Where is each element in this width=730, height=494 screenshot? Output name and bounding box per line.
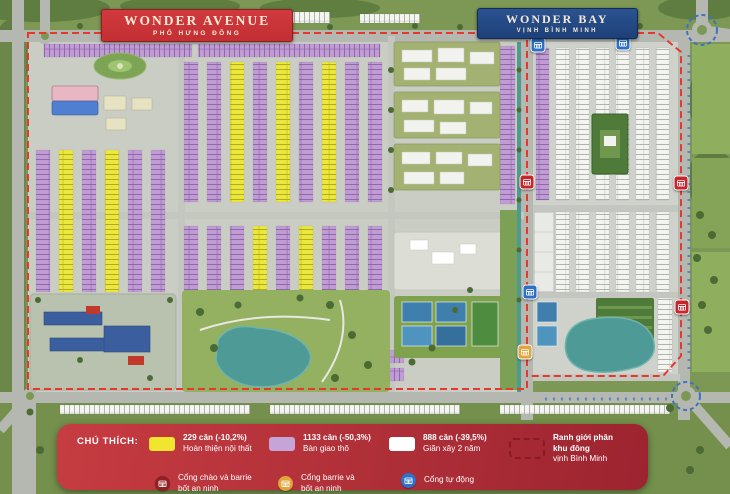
wonder-avenue-label: WONDER AVENUE PHỐ HƯNG ĐÔNG <box>101 9 293 42</box>
legend-item-white: 888 căn (-39,5%) Giãn xây 2 năm <box>389 433 509 454</box>
legend-panel: CHÚ THÍCH: 229 căn (-10,2%) Hoàn thiện n… <box>57 424 648 490</box>
gate-yellow-icon <box>278 476 293 491</box>
legend-item-purple-line1: 1133 căn (-50,3%) <box>303 433 371 444</box>
legend-item-white-line2: Giãn xây 2 năm <box>423 444 487 455</box>
legend-item-yellow: 229 căn (-10,2%) Hoàn thiện nội thất <box>149 433 269 454</box>
gate-red-icon <box>155 476 170 491</box>
legend-item-boundary-line1: Ranh giới phân khu đông <box>553 433 629 454</box>
bay-lake <box>565 317 654 372</box>
wonder-bay-title: WONDER BAY <box>506 12 609 27</box>
white-swatch-icon <box>389 437 415 451</box>
clubhouse-building <box>52 86 98 115</box>
legend-item-white-line1: 888 căn (-39,5%) <box>423 433 487 444</box>
legend-gate-yellow: Cổng barrie và bốt an ninh <box>278 473 401 494</box>
masterplan-canvas: WONDER AVENUE PHỐ HƯNG ĐÔNG WONDER BAY V… <box>0 0 730 494</box>
wonder-bay-subtitle: VỊNH BÌNH MINH <box>506 28 609 34</box>
masterplan-graphic <box>0 0 730 494</box>
bay-green-block <box>592 114 628 174</box>
legend-item-boundary: Ranh giới phân khu đông vịnh Bình Minh <box>509 433 629 465</box>
legend-item-purple: 1133 căn (-50,3%) Bàn giao thô <box>269 433 389 454</box>
wonder-bay-label: WONDER BAY VỊNH BÌNH MINH <box>477 8 638 39</box>
wonder-avenue-subtitle: PHỐ HƯNG ĐÔNG <box>124 30 270 37</box>
legend-gate-yellow-line1: Cổng barrie và <box>301 473 355 484</box>
legend-gate-red: Cổng chào và barrie bốt an ninh <box>155 473 278 494</box>
bay-towers <box>534 212 554 292</box>
legend-item-purple-line2: Bàn giao thô <box>303 444 371 455</box>
commercial-blocks <box>394 42 500 190</box>
legend-gate-blue: Cổng tự động <box>401 473 524 488</box>
dashed-boundary-swatch-icon <box>509 438 545 459</box>
legend-item-yellow-line1: 229 căn (-10,2%) <box>183 433 252 444</box>
legend-item-boundary-line2: vịnh Bình Minh <box>553 454 629 465</box>
legend-gate-yellow-line2: bốt an ninh <box>301 484 355 494</box>
legend-title: CHÚ THÍCH: <box>77 433 149 447</box>
sports-courts <box>394 296 504 358</box>
central-plaza <box>394 232 502 290</box>
gate-blue-icon <box>401 473 416 488</box>
yellow-swatch-icon <box>149 437 175 451</box>
purple-swatch-icon <box>269 437 295 451</box>
legend-item-yellow-line2: Hoàn thiện nội thất <box>183 444 252 455</box>
oval-park <box>94 53 146 79</box>
canal <box>517 42 521 392</box>
legend-gate-blue-line1: Cổng tự động <box>424 475 474 486</box>
campus-school <box>30 294 176 390</box>
legend-gate-red-line1: Cổng chào và barrie <box>178 473 252 484</box>
wonder-avenue-title: WONDER AVENUE <box>124 13 270 29</box>
legend-gate-red-line2: bốt an ninh <box>178 484 252 494</box>
